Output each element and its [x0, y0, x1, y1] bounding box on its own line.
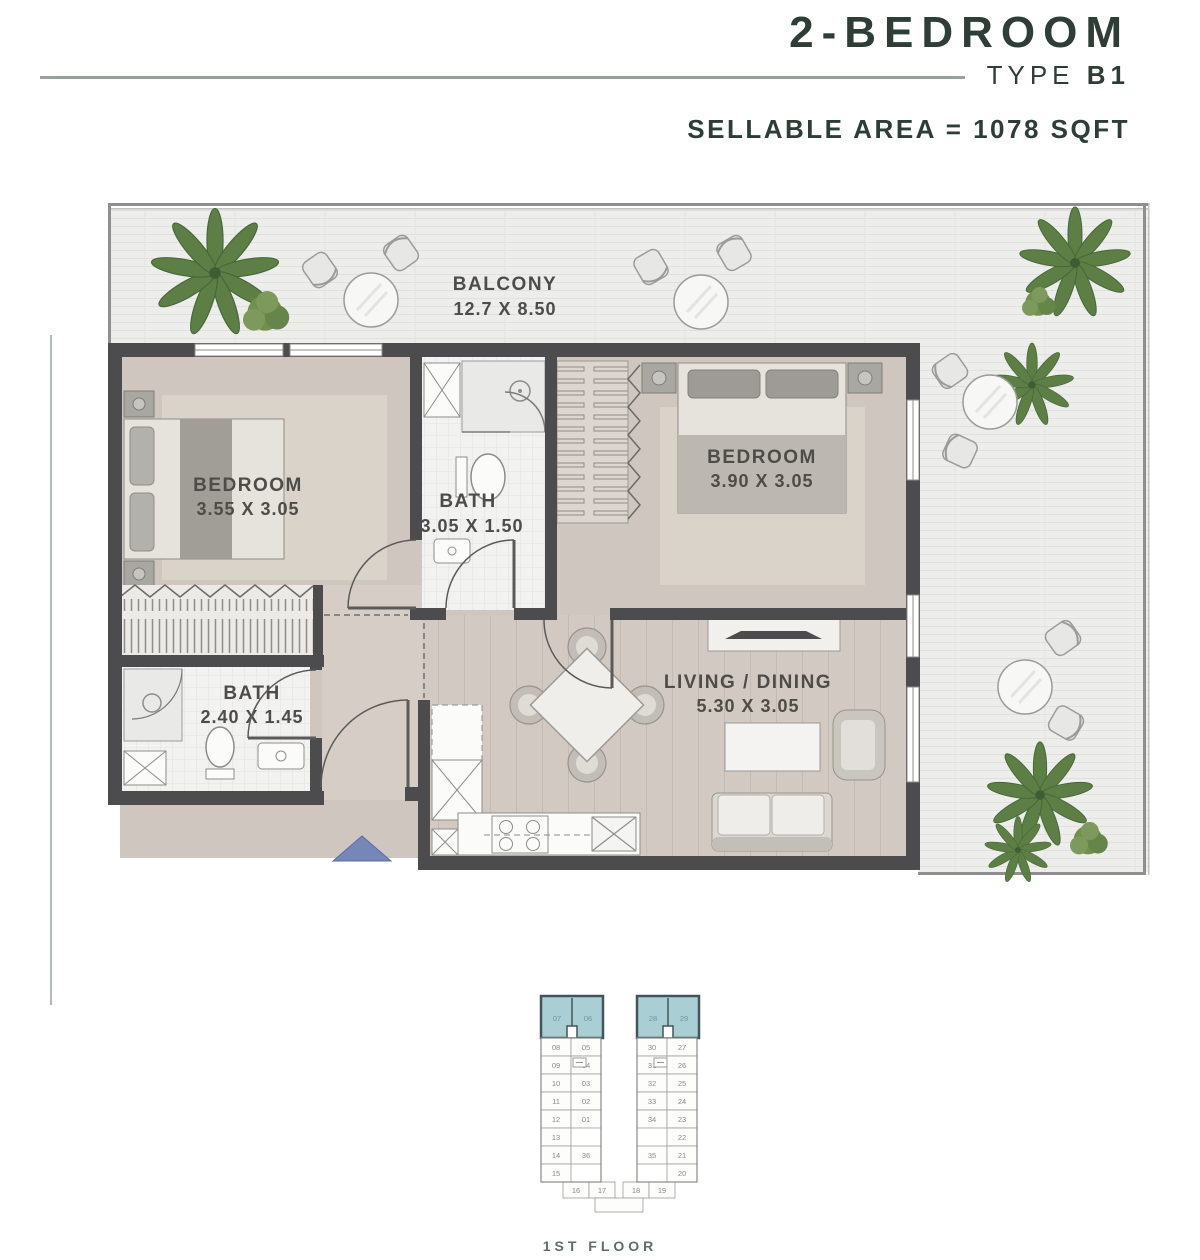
shower-icon	[462, 361, 545, 432]
left-accent-line	[50, 335, 52, 1005]
keyplan-unit-number: 35	[648, 1151, 656, 1160]
page-title: 2-BEDROOM	[789, 8, 1130, 58]
keyplan-unit-number: 02	[582, 1097, 590, 1106]
keyplan-unit-number: 10	[552, 1079, 560, 1088]
keyplan-unit-number: 14	[552, 1151, 560, 1160]
coffee-table-icon	[725, 723, 820, 771]
bedroom2-wardrobe	[557, 361, 640, 523]
floorplan: BALCONY 12.7 X 8.50	[100, 195, 1160, 885]
living-dims: 5.30 X 3.05	[696, 696, 799, 716]
keyplan-unit-number: 06	[584, 1014, 592, 1023]
tv-console-icon	[708, 615, 840, 651]
sink-icon	[434, 539, 470, 563]
keyplan-unit-number: 16	[572, 1186, 580, 1195]
keyplan-lobby	[595, 1198, 643, 1212]
washer-icon	[424, 363, 460, 417]
keyplan-unit-number: 13	[552, 1133, 560, 1142]
keyplan-unit-number: 34	[648, 1115, 656, 1124]
sink2-icon	[258, 743, 304, 769]
keyplan-unit-number: 09	[552, 1061, 560, 1070]
armchair-icon	[833, 710, 885, 780]
keyplan-unit-number: 12	[552, 1115, 560, 1124]
keyplan-unit-number: 03	[582, 1079, 590, 1088]
floorplan-page: 2-BEDROOM TYPE B1 SELLABLE AREA = 1078 S…	[0, 0, 1200, 1260]
keyplan-unit-number: 33	[648, 1097, 656, 1106]
keyplan-unit-number: 25	[678, 1079, 686, 1088]
header-divider	[40, 76, 965, 79]
keyplan-unit-number: 15	[552, 1169, 560, 1178]
keyplan-unit-number: 20	[678, 1169, 686, 1178]
sellable-area: SELLABLE AREA = 1078 SQFT	[687, 114, 1130, 145]
keyplan-unit-number: 21	[678, 1151, 686, 1160]
shower2-icon	[124, 669, 182, 741]
keyplan-unit-number: 08	[552, 1043, 560, 1052]
keyplan-unit-number: 29	[680, 1014, 688, 1023]
living-label: LIVING / DINING	[664, 672, 832, 693]
keyplan-unit-number: 17	[598, 1186, 606, 1195]
keyplan-unit-number: 07	[553, 1014, 561, 1023]
keyplan-unit-number: 22	[678, 1133, 686, 1142]
balcony-label: BALCONY	[453, 274, 557, 295]
keyplan-unit-number: 01	[582, 1115, 590, 1124]
sofa-icon	[712, 793, 832, 851]
keyplan-unit-number: 05	[582, 1043, 590, 1052]
bedroom2-window	[907, 400, 919, 480]
keyplan-unit-number: 27	[678, 1043, 686, 1052]
keyplan-unit-number: 26	[678, 1061, 686, 1070]
unit-type-label: TYPE	[987, 60, 1087, 90]
bedroom1-dims: 3.55 X 3.05	[196, 499, 299, 519]
balcony-dims: 12.7 X 8.50	[453, 299, 556, 319]
keyplan-svg: 0706282908091011121314150504030201363031…	[533, 988, 707, 1228]
keyplan-floor-label: 1ST FLOOR	[0, 1238, 1200, 1254]
bedroom2-dims: 3.90 X 3.05	[710, 471, 813, 491]
bedroom1-closet	[120, 585, 313, 655]
unit-type-value: B1	[1087, 60, 1130, 90]
fridge-icon	[432, 705, 482, 760]
washer2-icon	[124, 751, 166, 785]
keyplan: 0706282908091011121314150504030201363031…	[533, 988, 707, 1228]
toilet2-icon	[206, 727, 234, 779]
keyplan-unit-number: 23	[678, 1115, 686, 1124]
living-window-1	[907, 595, 919, 657]
keyplan-unit-number: 19	[658, 1186, 666, 1195]
kitchen-sink-icon	[592, 817, 636, 851]
bedroom2-label: BEDROOM	[707, 447, 817, 468]
keyplan-unit-number: 28	[649, 1014, 657, 1023]
keyplan-unit-number: 24	[678, 1097, 686, 1106]
keyplan-unit-number: 18	[632, 1186, 640, 1195]
keyplan-unit-number: 30	[648, 1043, 656, 1052]
keyplan-unit-number: 11	[552, 1097, 560, 1106]
bedroom1-label: BEDROOM	[193, 475, 303, 496]
bath1-label: BATH	[439, 491, 496, 512]
unit-type: TYPE B1	[987, 60, 1130, 91]
kitchen-cabinet-icon	[432, 760, 482, 820]
keyplan-unit-number: 36	[582, 1151, 590, 1160]
keyplan-unit-number: 32	[648, 1079, 656, 1088]
kitchen-cabinet-small-icon	[432, 829, 458, 855]
floorplan-svg: BALCONY 12.7 X 8.50	[100, 195, 1160, 885]
bath2-dims: 2.40 X 1.45	[200, 707, 303, 727]
bath1-dims: 3.05 X 1.50	[420, 516, 523, 536]
living-window-2	[907, 687, 919, 782]
